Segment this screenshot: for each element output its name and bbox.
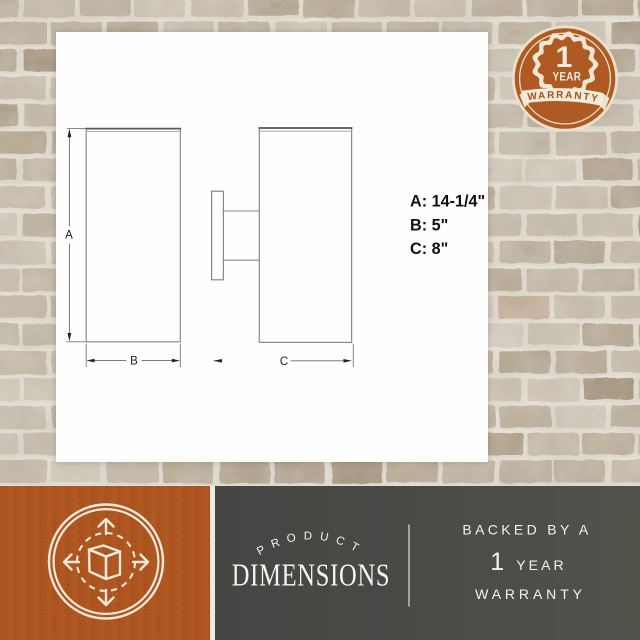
svg-text:PRODUCT: PRODUCT: [255, 530, 367, 558]
svg-text:1YEAR: 1YEAR: [490, 548, 566, 576]
svg-text:1: 1: [556, 41, 573, 74]
svg-text:DIMENSIONS: DIMENSIONS: [232, 558, 391, 593]
svg-text:B: 5": B: 5": [410, 216, 448, 234]
svg-text:A: 14-1/4": A: 14-1/4": [410, 192, 485, 210]
svg-text:C: 8": C: 8": [410, 240, 448, 258]
svg-text:A: A: [65, 230, 73, 242]
svg-text:B: B: [130, 356, 138, 368]
svg-text:WARRANTY: WARRANTY: [475, 586, 586, 602]
svg-text:YEAR: YEAR: [553, 71, 582, 84]
svg-text:C: C: [280, 356, 288, 368]
svg-text:BACKED BY A: BACKED BY A: [462, 521, 591, 537]
